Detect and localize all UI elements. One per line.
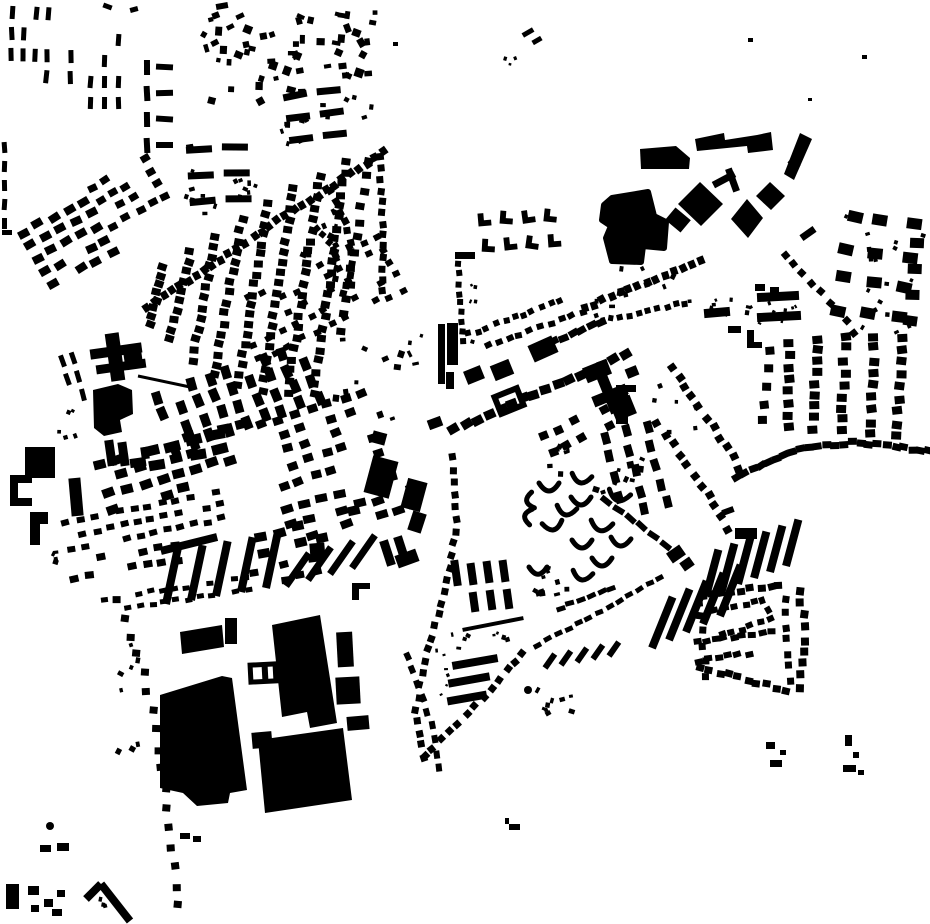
- map-viewport: [0, 0, 930, 924]
- figure-ground-map: [0, 0, 930, 924]
